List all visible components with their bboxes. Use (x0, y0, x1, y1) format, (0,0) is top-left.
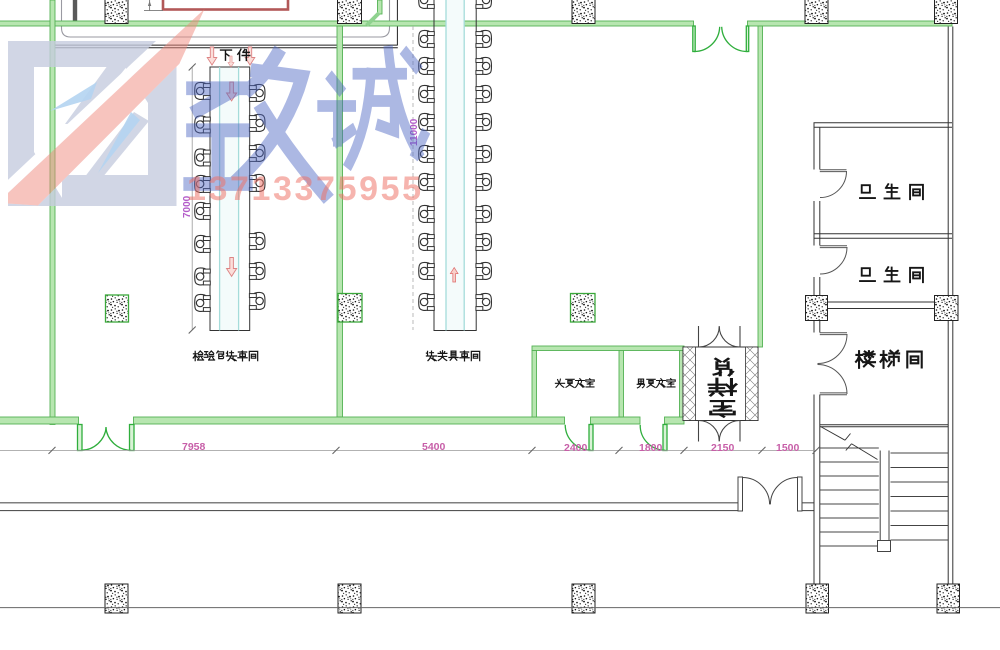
svg-text:13713375955: 13713375955 (187, 170, 424, 208)
svg-text:2400: 2400 (564, 442, 588, 454)
svg-text:7958: 7958 (182, 441, 206, 453)
svg-text:1500: 1500 (776, 442, 800, 454)
svg-text:5400: 5400 (422, 441, 446, 453)
svg-text:1800: 1800 (639, 442, 663, 454)
svg-text:2150: 2150 (711, 442, 735, 454)
